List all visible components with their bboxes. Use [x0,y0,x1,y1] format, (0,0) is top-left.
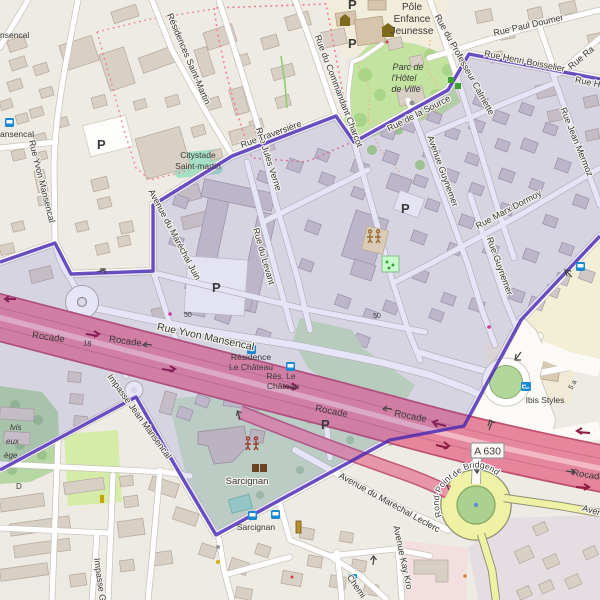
svg-text:P: P [97,137,106,152]
svg-text:de Ville: de Ville [391,84,420,94]
svg-text:P: P [348,36,357,51]
svg-text:l'Hôtel: l'Hôtel [392,73,418,83]
svg-text:ège: ège [4,451,18,460]
svg-text:Pôle: Pôle [402,2,422,13]
svg-text:50: 50 [184,312,192,319]
svg-text:Château: Château [267,381,299,391]
svg-text:P: P [321,417,330,432]
svg-text:A 630: A 630 [474,446,501,458]
svg-text:D: D [16,482,22,491]
svg-text:Jeunesse: Jeunesse [391,26,434,37]
svg-text:Citystade: Citystade [180,150,216,160]
svg-text:eux: eux [6,437,20,446]
svg-text:nsencal: nsencal [0,30,29,40]
svg-text:18: 18 [83,338,93,348]
svg-text:Parc de: Parc de [392,62,423,72]
svg-text:Rés. Le: Rés. Le [266,371,296,381]
svg-text:Sarcignan: Sarcignan [226,476,269,487]
svg-text:lvis: lvis [10,423,22,432]
svg-text:Saint-martin: Saint-martin [175,161,221,171]
svg-text:Sarcignan: Sarcignan [237,522,276,532]
svg-text:50: 50 [373,313,381,320]
svg-text:P: P [348,0,357,12]
svg-text:Résidence: Résidence [231,352,271,362]
svg-text:Enfance: Enfance [394,14,431,25]
svg-text:Ibis Styles: Ibis Styles [526,395,565,405]
svg-text:P: P [212,280,221,295]
svg-text:ansencal: ansencal [0,129,34,139]
svg-text:P: P [401,201,410,216]
